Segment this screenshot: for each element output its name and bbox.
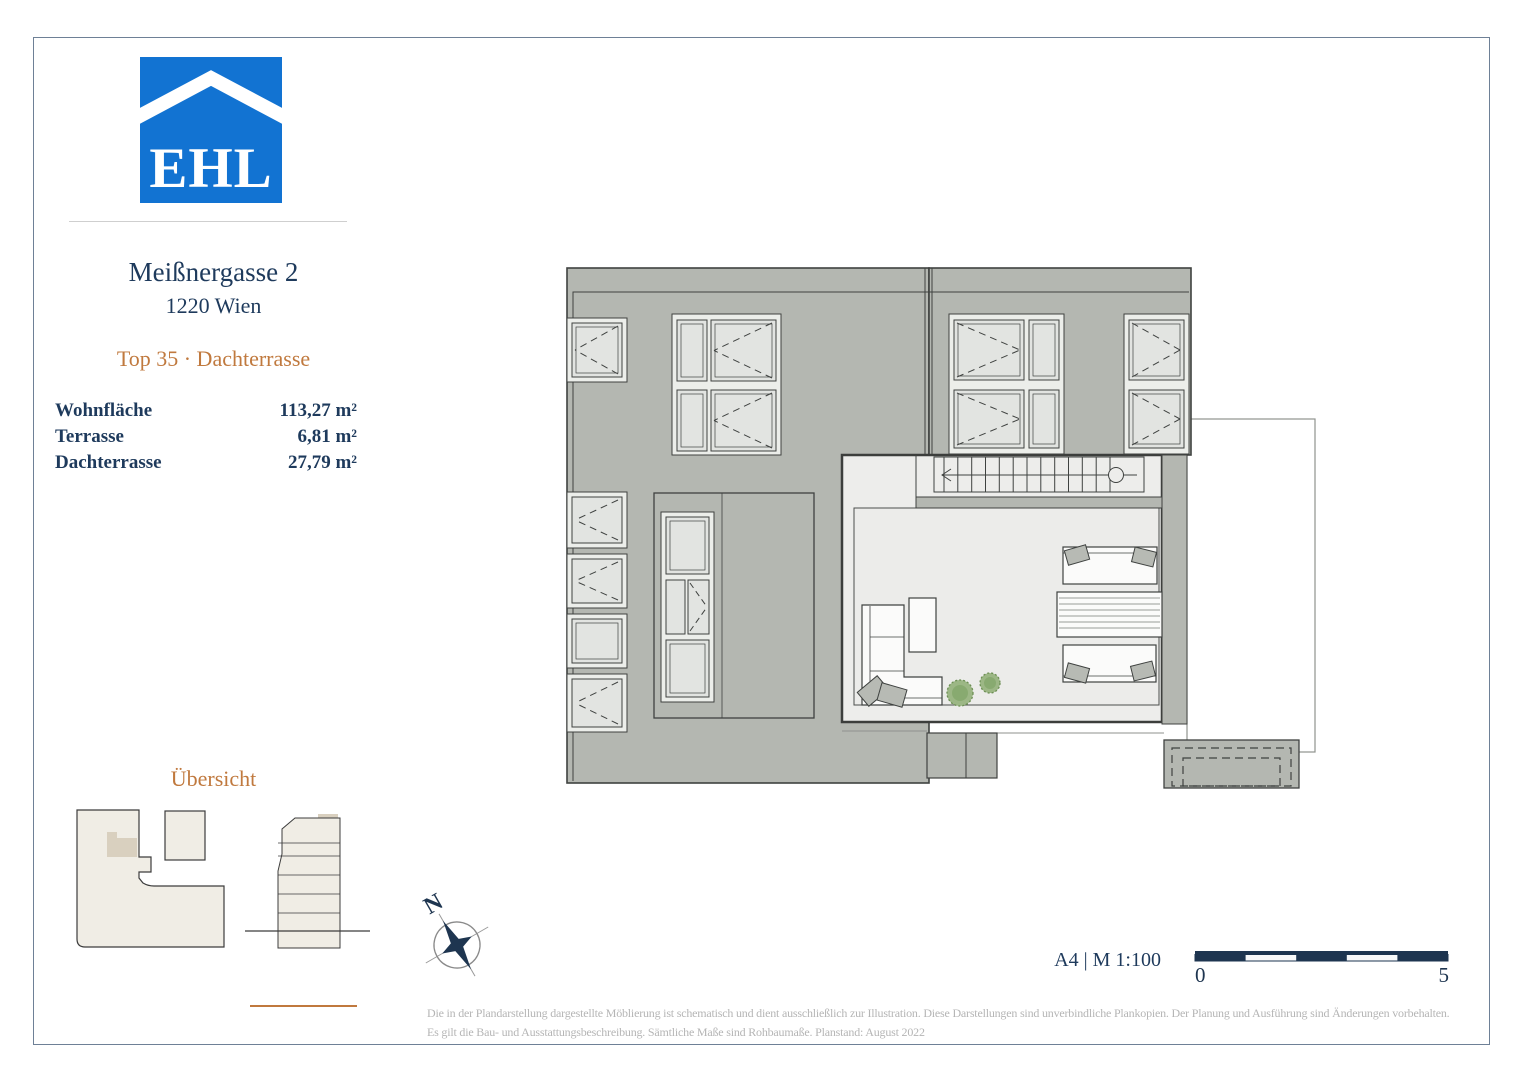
overview-title: Übersicht (34, 766, 393, 792)
area-value: 6,81 m² (297, 424, 357, 450)
roof-structure (654, 493, 814, 718)
floor-plan (559, 262, 1331, 792)
skylight-window (567, 318, 627, 382)
title-block-panel: EHL Meißnergasse 2 1220 Wien Top 35 · Da… (33, 37, 394, 1045)
skylight-window-pair (672, 314, 781, 455)
terrace-right-wall (1162, 455, 1187, 724)
plant (980, 673, 1000, 693)
neighbor-building (165, 811, 205, 860)
scale-start-label: 0 (1195, 963, 1206, 987)
walk-line-start-circle (1109, 468, 1124, 483)
dormer-skylight (1164, 740, 1299, 788)
divider-line (69, 221, 347, 222)
skylight-window (567, 554, 627, 608)
section-outline (278, 818, 340, 948)
logo-text: EHL (149, 137, 272, 200)
skylight-window (666, 517, 709, 574)
north-label: N (419, 888, 448, 920)
address-line-2: 1220 Wien (34, 292, 393, 320)
lower-floor-outline (1187, 419, 1315, 752)
overview-key-plan (63, 807, 373, 952)
skylight-window-pair (1124, 314, 1189, 454)
roof-stub (927, 733, 997, 778)
sheet-scale-text: A4 | M 1:100 (1019, 948, 1161, 972)
area-table: Wohnfläche 113,27 m² Terrasse 6,81 m² Da… (55, 398, 357, 476)
area-label: Terrasse (55, 424, 124, 450)
scale-end-label: 5 (1439, 963, 1450, 987)
table-row: Dachterrasse 27,79 m² (55, 450, 357, 476)
area-value: 27,79 m² (288, 450, 357, 476)
scale-bar: 0 5 (1194, 945, 1452, 987)
plan-sheet: EHL Meißnergasse 2 1220 Wien Top 35 · Da… (0, 0, 1527, 1080)
accent-underline (250, 1005, 357, 1007)
drawing-panel: N A4 | M 1:100 0 5 Die in der Plandarste… (393, 37, 1490, 1045)
ehl-logo-icon: EHL (140, 57, 282, 203)
skylight-window (666, 580, 685, 634)
lounger (1063, 545, 1157, 584)
table-row: Wohnfläche 113,27 m² (55, 398, 357, 424)
unit-title: Top 35 · Dachterrasse (34, 346, 393, 372)
area-label: Wohnfläche (55, 398, 152, 424)
skylight-window-pair (949, 314, 1064, 454)
compass-rose: N (413, 881, 497, 985)
table-row: Terrasse 6,81 m² (55, 424, 357, 450)
skylight-window (567, 492, 627, 548)
lounger (1063, 645, 1156, 683)
staircase (934, 457, 1144, 492)
plant (947, 680, 973, 706)
side-table (909, 598, 936, 652)
wall-under-stairs (916, 497, 1162, 508)
skylight-window (567, 674, 627, 732)
skylight-window (688, 580, 709, 634)
disclaimer: Die in der Plandarstellung dargestellte … (427, 1004, 1482, 1042)
building-section (245, 814, 370, 948)
area-label: Dachterrasse (55, 450, 162, 476)
outdoor-table (1057, 592, 1162, 637)
address-line-1: Meißnergasse 2 (34, 256, 393, 289)
skylight-window (666, 640, 709, 697)
area-value: 113,27 m² (280, 398, 357, 424)
disclaimer-line-1: Die in der Plandarstellung dargestellte … (427, 1004, 1482, 1023)
compass-icon: N (413, 881, 497, 985)
site-plan (77, 810, 224, 947)
skylight-window (567, 614, 627, 668)
disclaimer-line-2: Es gilt die Bau- und Ausstattungsbeschre… (427, 1023, 1482, 1042)
